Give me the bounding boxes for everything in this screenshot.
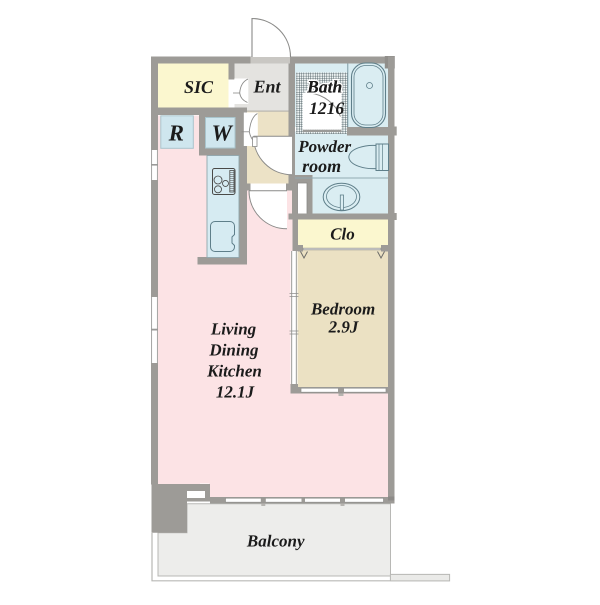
svg-text:2.9J: 2.9J <box>328 317 359 336</box>
svg-text:Clo: Clo <box>330 225 355 244</box>
svg-text:Bedroom: Bedroom <box>310 300 375 319</box>
svg-text:W: W <box>211 120 233 145</box>
svg-text:Ent: Ent <box>252 77 281 97</box>
svg-text:Powder: Powder <box>297 137 351 156</box>
svg-text:12.1J: 12.1J <box>216 383 255 402</box>
svg-text:1216: 1216 <box>309 98 344 118</box>
svg-text:SIC: SIC <box>184 77 214 97</box>
svg-text:Kitchen: Kitchen <box>206 362 262 381</box>
svg-text:Dining: Dining <box>208 341 259 360</box>
svg-text:Living: Living <box>210 320 257 339</box>
svg-text:room: room <box>302 156 341 176</box>
svg-text:R: R <box>168 121 184 146</box>
svg-text:Balcony: Balcony <box>246 532 305 551</box>
svg-text:Bath: Bath <box>306 77 342 97</box>
